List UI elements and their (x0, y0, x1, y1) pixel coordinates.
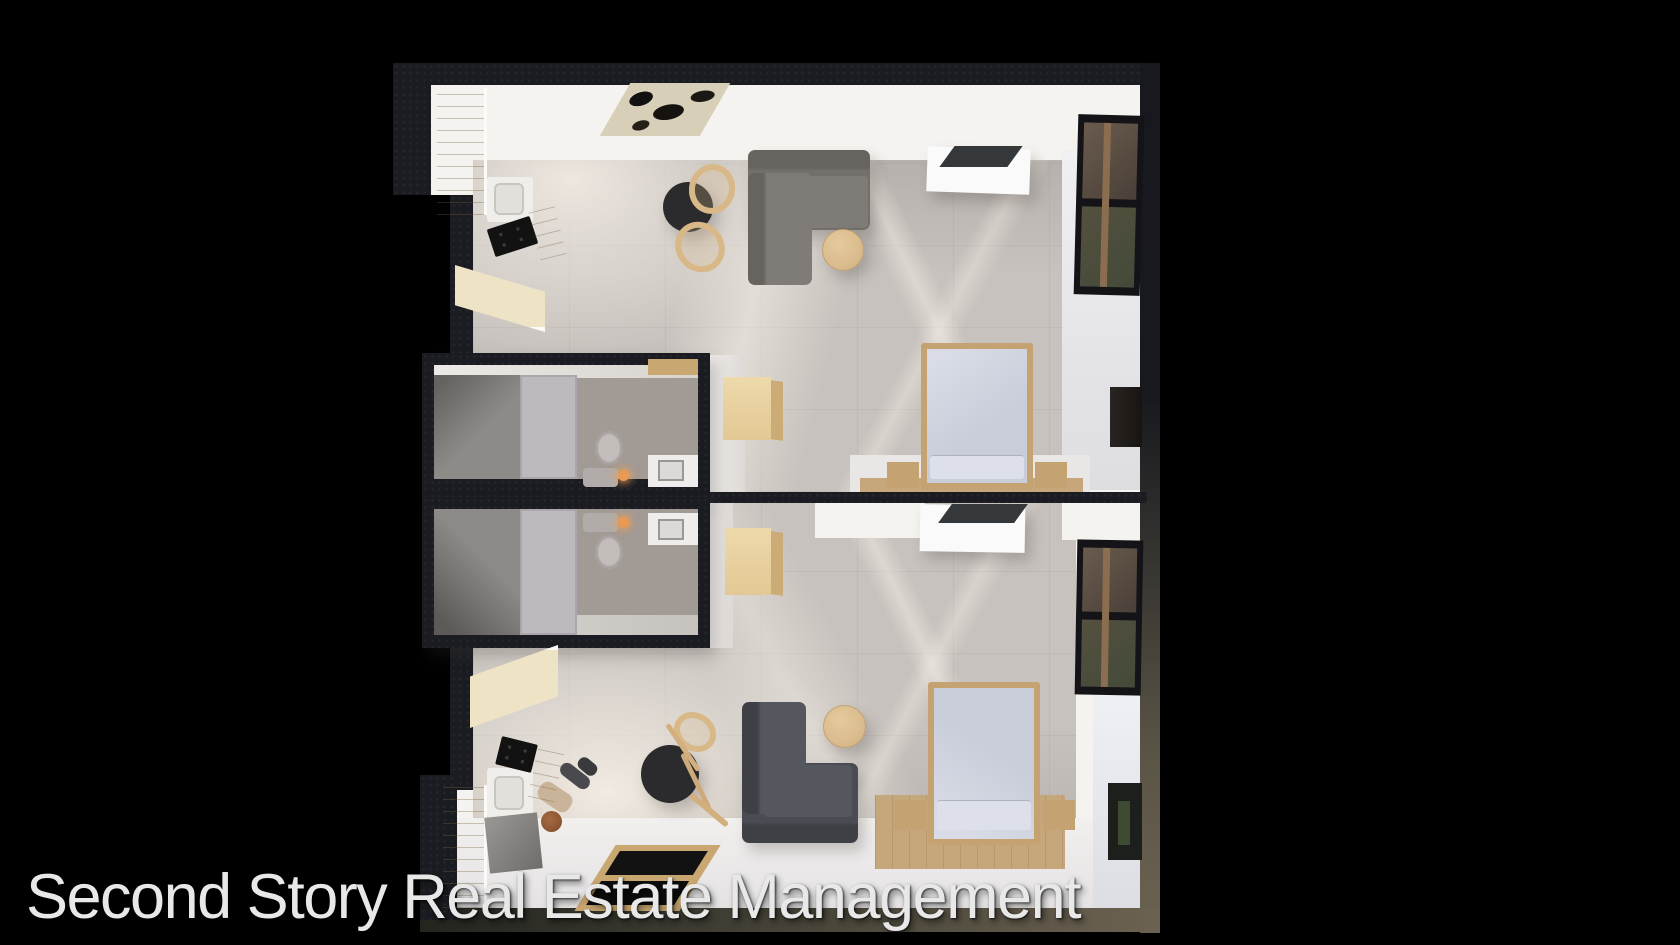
upper-coffee-table (822, 229, 864, 271)
upper-kitchen-sink (487, 177, 533, 222)
lower-tv (938, 504, 1028, 523)
upper-candle-light (618, 470, 629, 481)
west-wall-step-lower (450, 640, 473, 790)
upper-window-wall (1074, 114, 1145, 296)
lower-console-white-floor (815, 503, 925, 538)
upper-shower (434, 375, 520, 479)
lower-shower (434, 509, 520, 635)
west-wall-upper (393, 63, 431, 215)
upper-sofa-seat (770, 176, 868, 228)
watermark-text: Second Story Real Estate Management (26, 866, 1080, 929)
lower-bathroom-floor (434, 509, 698, 635)
lower-cube-side (771, 531, 783, 596)
upper-vanity-basin (658, 460, 684, 481)
upper-kitchen-tall-cabinet (437, 88, 487, 215)
lower-sink-basin (494, 776, 524, 810)
lower-vanity (648, 513, 698, 545)
upper-cube-side (771, 380, 783, 441)
render-canvas: { "watermark": { "text": "Second Story R… (0, 0, 1680, 945)
lower-kitchen-sink (487, 768, 533, 818)
lower-bathroom-walls (422, 497, 710, 648)
upper-bathroom-walls (422, 353, 710, 500)
lower-vanity-basin (658, 519, 684, 540)
lower-bed-pillows (937, 800, 1031, 830)
person-head (541, 811, 562, 832)
lower-coffee-table (823, 705, 866, 748)
lower-bath-side-table (583, 513, 618, 532)
upper-bed-pillows (930, 455, 1024, 479)
upper-bath-side-table (583, 468, 618, 487)
upper-nightstand-left (887, 462, 919, 488)
lower-window-wall (1075, 539, 1144, 695)
lower-right-wall-upper (1062, 503, 1142, 540)
lower-sofa-seat (764, 765, 852, 817)
exterior-notch-lower (393, 648, 450, 775)
lower-bathroom-door (520, 509, 577, 635)
lower-nightstand-left (893, 800, 927, 830)
upper-bed (921, 343, 1033, 489)
lower-tv-niche (1108, 783, 1142, 860)
upper-wood-cube-dresser (723, 377, 783, 440)
lower-toilet (595, 535, 623, 569)
tv-niche-glass (1118, 801, 1130, 845)
north-wall (393, 63, 1160, 85)
floor-plan-render (393, 63, 1160, 933)
upper-dark-dresser (1110, 387, 1142, 447)
upper-cube-front (723, 377, 771, 440)
lower-bed (928, 682, 1040, 845)
upper-nightstand-right (1035, 462, 1067, 488)
upper-bathroom-floor (434, 365, 698, 479)
lower-cube-front (725, 528, 771, 595)
lower-wood-cube-dresser (725, 528, 783, 595)
upper-bathroom-door (520, 375, 577, 479)
exterior-notch-upper (393, 195, 450, 360)
lower-nightstand-right (1043, 800, 1075, 830)
lower-candle-light (618, 517, 629, 528)
upper-bath-wood-shelf (648, 359, 698, 375)
upper-vanity (648, 455, 698, 487)
upper-toilet (595, 431, 623, 465)
upper-sink-basin (494, 183, 524, 215)
